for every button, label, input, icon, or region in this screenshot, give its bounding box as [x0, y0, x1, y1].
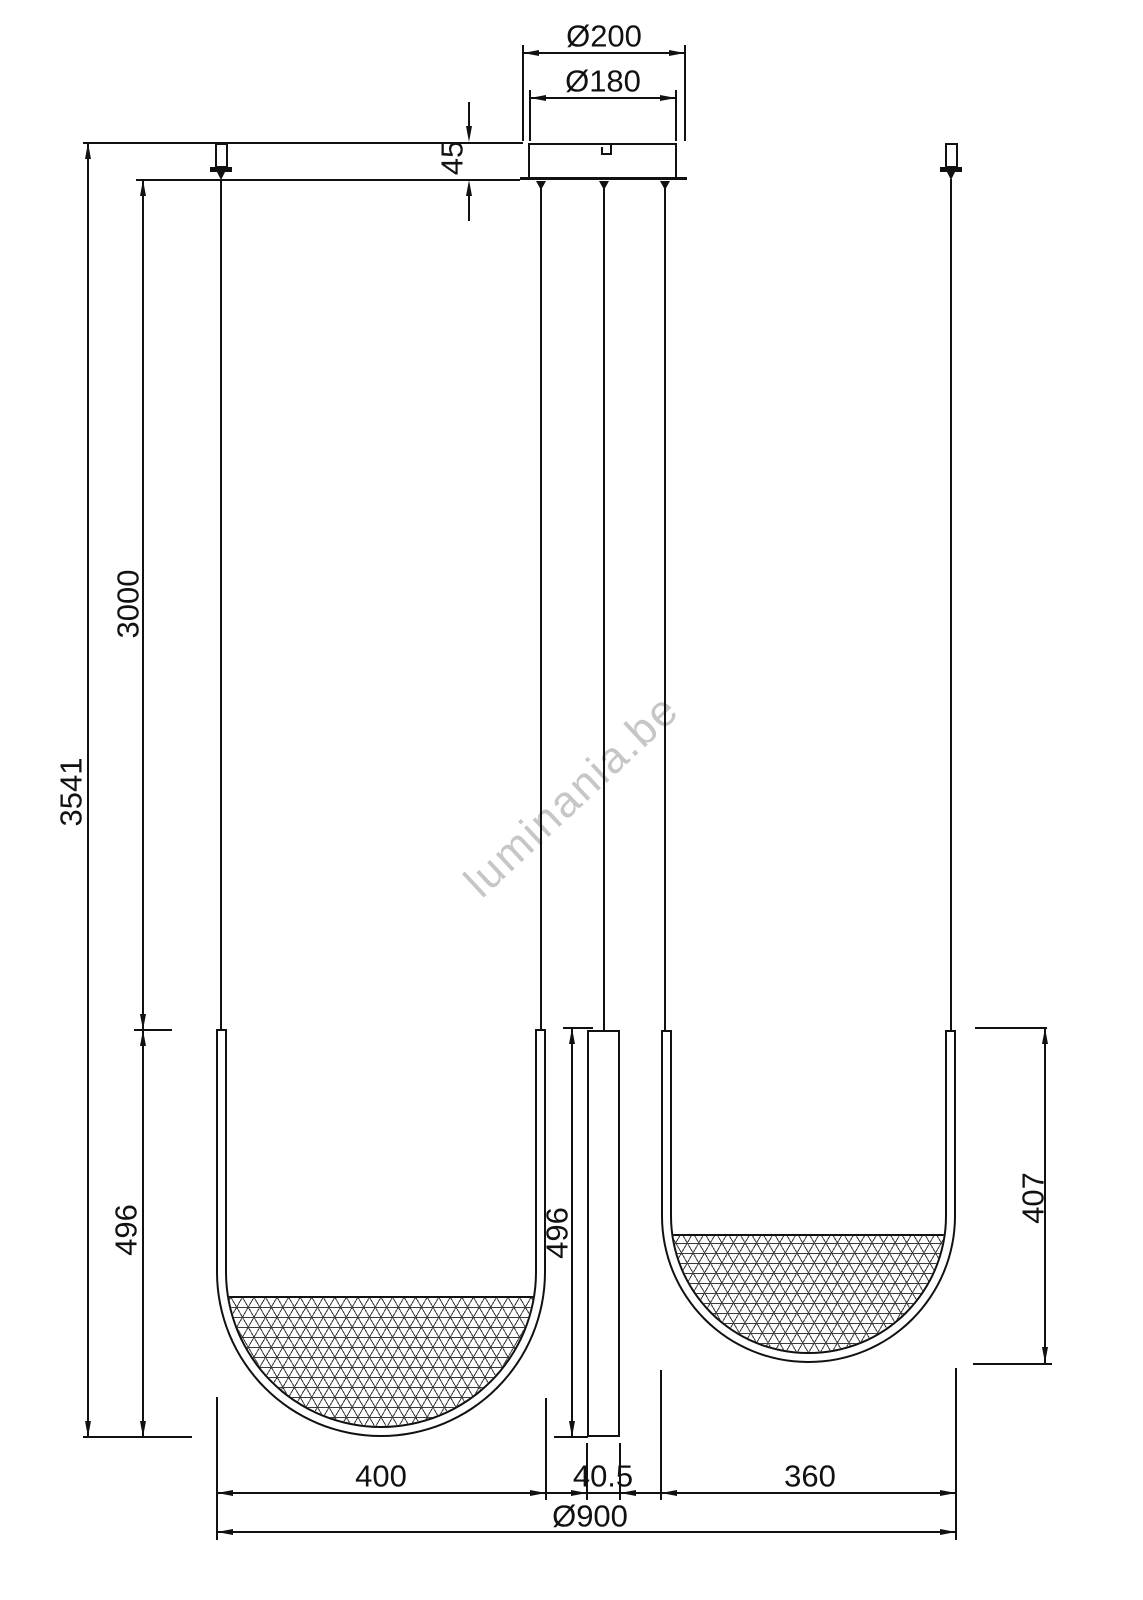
ceiling-mount-right: [945, 143, 958, 168]
arrowhead: [569, 1421, 575, 1437]
ceiling-mount-right-grip: [947, 172, 955, 180]
wire-left: [220, 179, 222, 1031]
left-pendant-inner-profile: [225, 1030, 537, 1428]
arrowhead: [217, 1490, 233, 1496]
arrowhead: [530, 1490, 546, 1496]
dim-label-overall-diameter: Ø900: [552, 1501, 628, 1532]
ext-line-width-right: [955, 1368, 957, 1540]
ext-line-bottom-left: [83, 1436, 192, 1438]
ceiling-mount-left: [215, 143, 228, 168]
canopy-base-plate: [520, 177, 687, 180]
wire-canopy-3: [664, 188, 666, 1031]
arrowhead: [140, 180, 146, 196]
left-pendant-diffuser-hatch: [225, 1296, 537, 1428]
dim-label-canopy-outer-diameter: Ø200: [566, 21, 642, 52]
dim-label-canopy-inner-diameter: Ø180: [565, 66, 641, 97]
right-pendant-diffuser-hatch: [670, 1234, 947, 1354]
arrowhead: [523, 50, 539, 56]
dim-label-left-pendant-depth: 496: [111, 1204, 142, 1256]
tube-cap: [216, 1029, 227, 1031]
ext-line-o200-right: [684, 45, 686, 141]
arrowhead: [140, 1030, 146, 1046]
wire-canopy-1: [540, 188, 542, 1031]
wire-canopy-2: [603, 188, 605, 1031]
arrowhead: [1042, 1347, 1048, 1363]
canopy-notch: [601, 147, 603, 155]
left-pendant-outer-profile: [216, 1030, 546, 1437]
ext-line-canopy-bottom: [136, 179, 520, 181]
tube-cap: [535, 1029, 546, 1031]
tube-cap: [661, 1030, 672, 1032]
arrowhead: [940, 1529, 956, 1535]
ext-tick-center-tube-top: [563, 1027, 593, 1029]
ext-line-360-left: [660, 1370, 662, 1500]
dim-line-45-top: [468, 102, 470, 128]
canopy-wire-grip-1: [536, 181, 546, 190]
ext-tick-right-u-top: [975, 1027, 1047, 1029]
arrowhead: [669, 50, 685, 56]
ext-line-o200-left: [522, 45, 524, 141]
arrowhead: [466, 126, 472, 142]
dim-label-right-pendant-width: 360: [784, 1461, 836, 1492]
dim-label-overall-drop: 3541: [56, 758, 87, 827]
ext-line-400-right: [545, 1398, 547, 1500]
arrowhead: [569, 1028, 575, 1044]
dim-label-left-pendant-width: 400: [355, 1461, 407, 1492]
dim-line-45-bottom: [468, 196, 470, 221]
arrowhead: [530, 95, 546, 101]
dim-label-center-tube-width: 40.5: [573, 1461, 633, 1492]
right-pendant-inner-profile: [670, 1031, 947, 1354]
ext-line-right-u-bottom: [973, 1363, 1052, 1365]
tube-cap: [945, 1030, 956, 1032]
arrowhead: [940, 1490, 956, 1496]
arrowhead: [140, 1421, 146, 1437]
canopy-wire-grip-3: [660, 181, 670, 190]
canopy-wire-grip-2: [599, 181, 609, 190]
arrowhead: [466, 180, 472, 196]
watermark: luminania.be: [455, 684, 689, 907]
technical-drawing-canvas: luminania.be: [0, 0, 1143, 1600]
arrowhead: [85, 1421, 91, 1437]
dim-label-center-tube-length: 496: [542, 1207, 573, 1259]
dim-label-right-pendant-depth: 407: [1018, 1172, 1049, 1224]
right-pendant-outer-profile: [661, 1031, 956, 1363]
arrowhead: [217, 1529, 233, 1535]
center-tube: [587, 1030, 620, 1437]
dim-label-suspension-length: 3000: [113, 570, 144, 639]
arrowhead: [85, 143, 91, 159]
arrowhead: [140, 1014, 146, 1030]
arrowhead: [1042, 1028, 1048, 1044]
arrowhead: [660, 95, 676, 101]
ext-line-width-left: [216, 1397, 218, 1540]
wire-right: [950, 179, 952, 1032]
arrowhead: [661, 1490, 677, 1496]
dim-label-canopy-height: 45: [437, 141, 468, 175]
